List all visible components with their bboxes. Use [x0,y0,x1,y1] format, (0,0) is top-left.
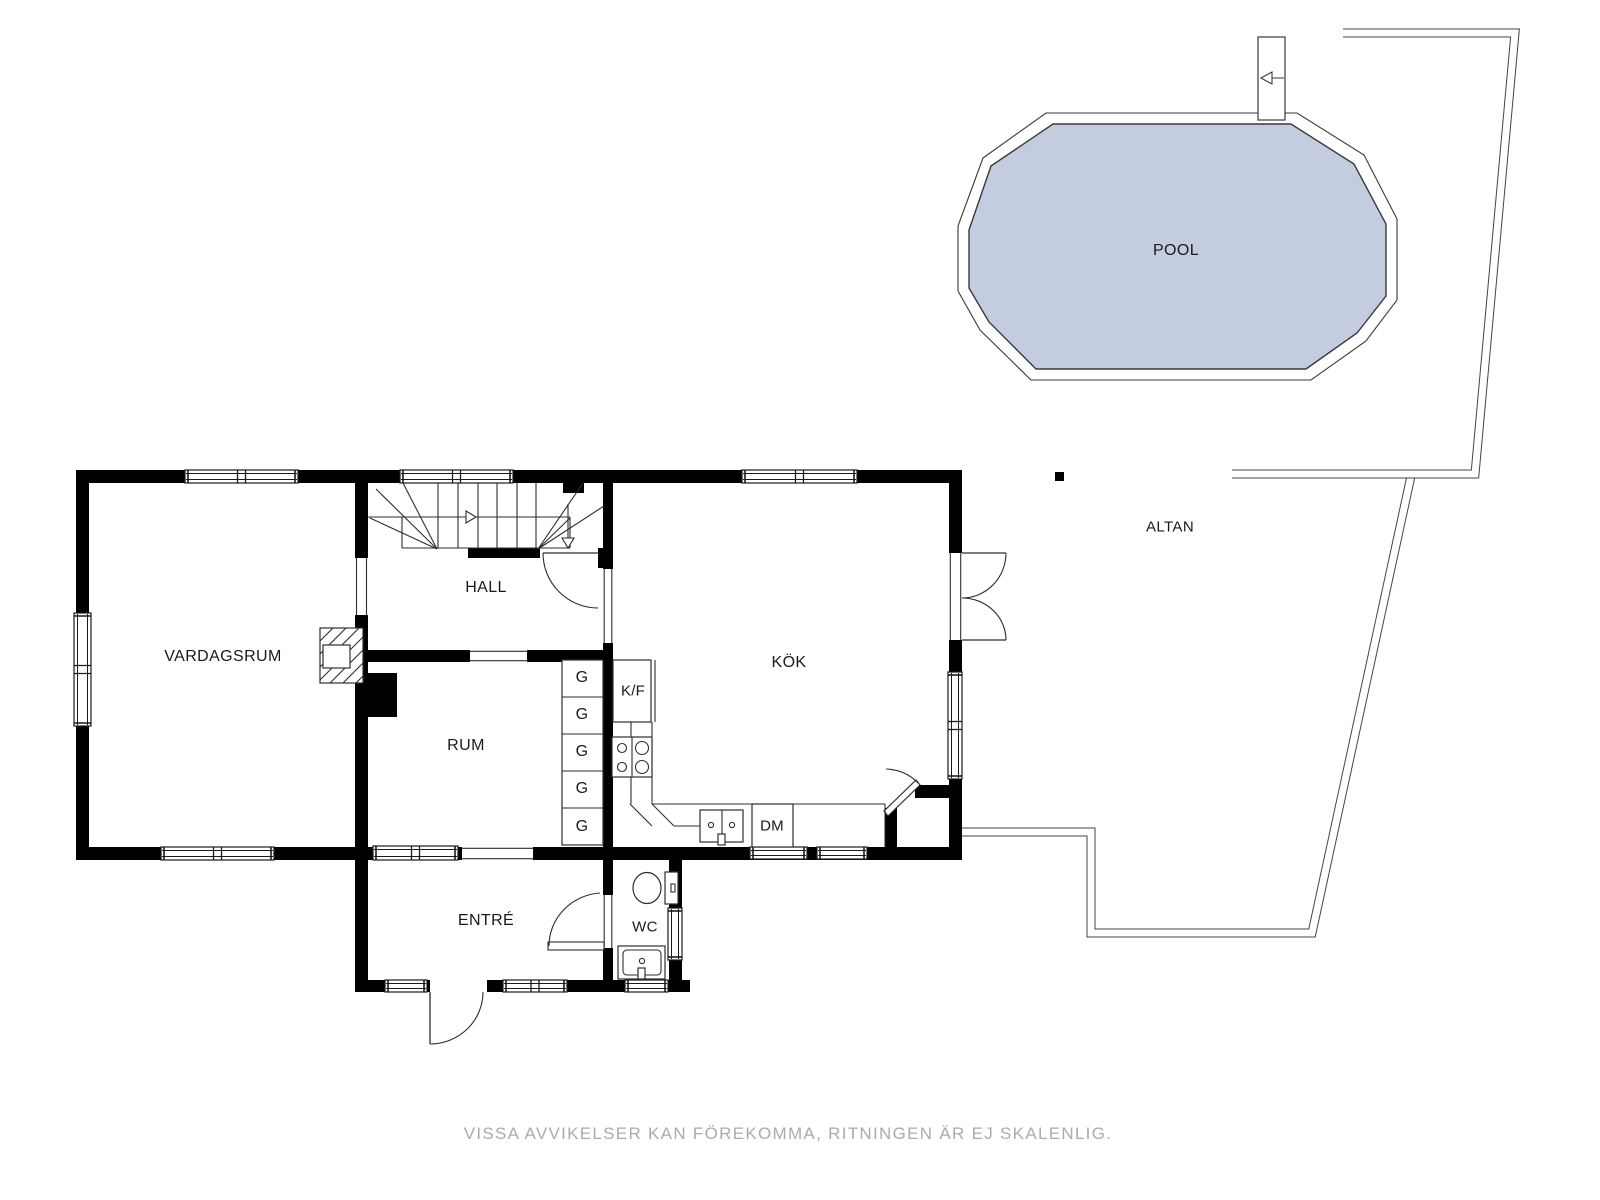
kitchen-fixtures [612,660,885,847]
window [750,847,807,859]
wardrobe-label-3: G [576,743,589,761]
window [185,470,298,483]
window [385,980,427,992]
pool-shape [958,37,1397,380]
disclaimer-text: VISSA AVVIKELSER KAN FÖREKOMMA, RITNINGE… [464,1124,1113,1144]
toilet [633,872,678,904]
area-label-pool: POOL [1153,242,1199,260]
window [668,908,682,960]
deck-post-marker [1055,472,1064,481]
stove [612,737,652,777]
terrace-double-door [962,553,1006,640]
room-label-wc: WC [632,919,658,936]
floor-plan: VARDAGSRUM HALL RUM KÖK ENTRÉ WC ALTAN P… [0,0,1600,1200]
wardrobe-label-1: G [576,669,589,687]
kitchen-sink [700,810,743,845]
window [817,847,867,859]
stair-direction-arrow-icon [466,511,476,523]
room-label-hall: HALL [465,579,507,597]
wardrobe-label-4: G [576,780,589,798]
room-label-vardagsrum: VARDAGSRUM [164,648,282,666]
chimney [320,628,363,683]
stair-down-arrow-icon [562,538,574,548]
window [161,847,274,860]
window [373,846,458,860]
doors [430,553,1006,1044]
fixture-label-dishwasher: DM [760,818,784,835]
washbasin [618,946,665,979]
kitchen-corner-door [884,769,920,816]
wall-openings [355,548,962,992]
window [503,980,567,992]
wardrobe-label-5: G [576,818,589,836]
window [74,613,91,726]
fixture-label-fridge-freezer: K/F [621,683,645,700]
wc-door [548,893,604,950]
room-label-entre: ENTRÉ [458,912,514,930]
pool-ladder [1258,37,1285,120]
room-label-kok: KÖK [772,654,807,672]
front-door [430,992,483,1044]
floor-plan-drawing [0,0,1600,1200]
window [742,470,857,483]
wardrobe-label-2: G [576,706,589,724]
room-label-rum: RUM [447,737,485,755]
window [625,980,668,992]
hall-door [543,553,598,608]
window [400,470,513,483]
area-label-altan: ALTAN [1146,519,1194,536]
window [948,672,962,779]
